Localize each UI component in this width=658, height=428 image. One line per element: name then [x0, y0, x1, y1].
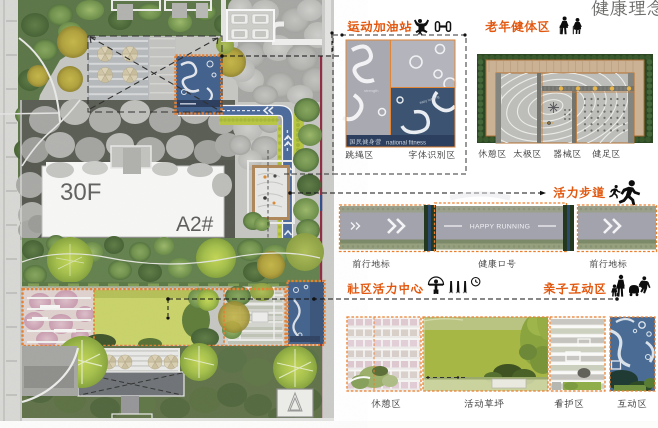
svg-text:strength: strength [364, 88, 378, 93]
svg-text:national fitness: national fitness [386, 141, 426, 147]
svg-text:HAPPY RUNNING: HAPPY RUNNING [470, 224, 530, 231]
